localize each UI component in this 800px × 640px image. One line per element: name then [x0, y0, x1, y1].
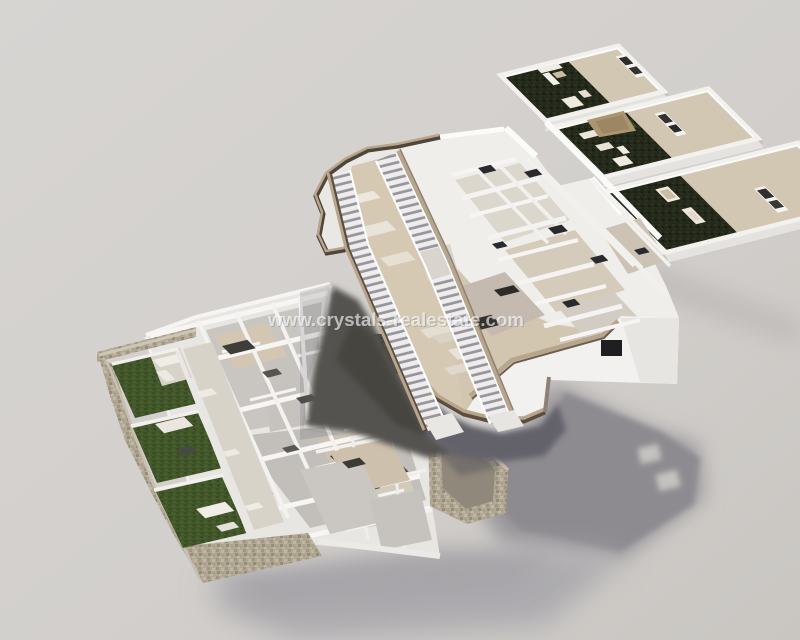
- svg-text:www.crystals-realestate.com: www.crystals-realestate.com: [267, 309, 524, 330]
